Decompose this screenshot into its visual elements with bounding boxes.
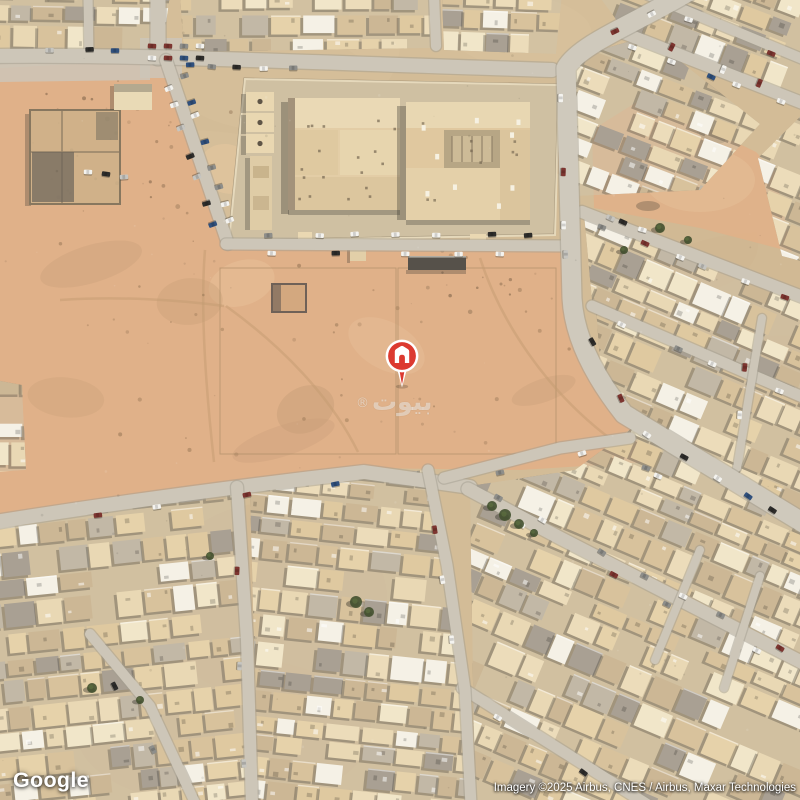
location-marker-pin[interactable] <box>380 334 424 390</box>
imagery-attribution: Imagery ©2025 Airbus, CNES / Airbus, Max… <box>494 782 796 794</box>
bayut-watermark: ® بيوت <box>356 389 432 414</box>
home-marker-icon <box>386 340 419 389</box>
registered-mark-icon: ® <box>356 397 369 410</box>
google-logo[interactable]: Google <box>13 768 89 793</box>
watermark-text: بيوت <box>372 389 432 414</box>
satellite-map-view[interactable]: ® بيوت Google Imagery ©2025 Airbus, CNES… <box>0 0 800 800</box>
